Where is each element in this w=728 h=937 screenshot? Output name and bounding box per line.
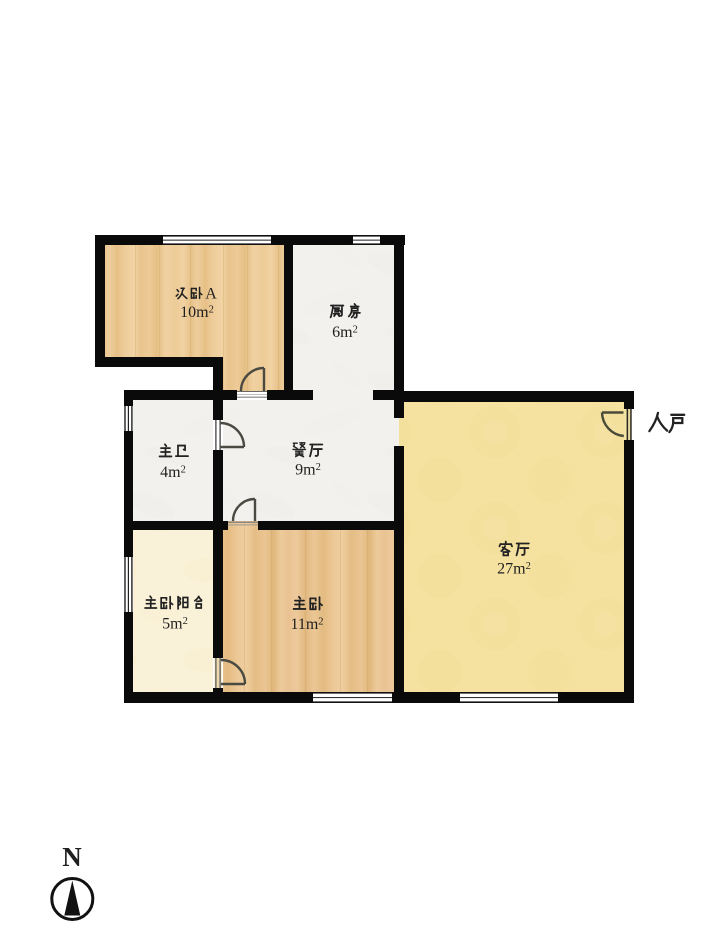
svg-text:A: A (205, 286, 217, 303)
svg-text:N: N (62, 842, 82, 872)
